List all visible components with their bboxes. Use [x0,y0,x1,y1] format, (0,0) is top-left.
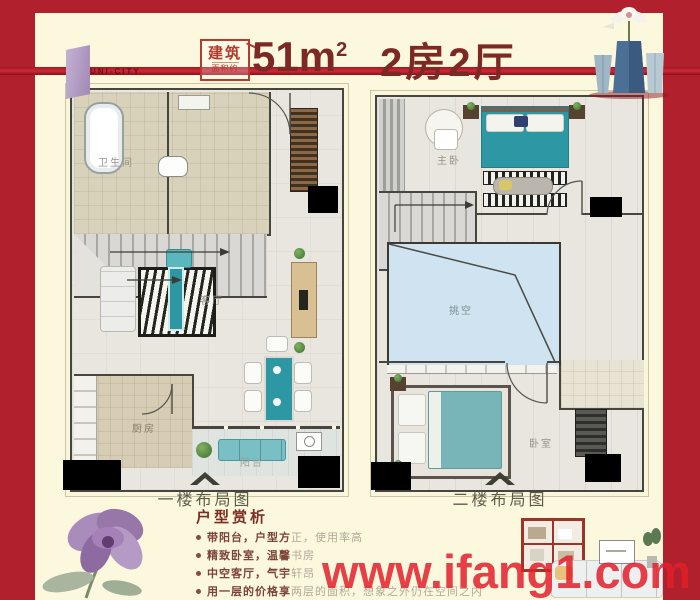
plant-icon [294,248,305,259]
redaction-box [63,460,121,490]
bullet-rest: 书房 [291,550,315,562]
floorplan-first-floor: 卫生间 客厅 厨房 阳台 [70,88,344,492]
brand-text: UNI-CITY [90,67,141,76]
bullet-dot-icon [196,553,201,558]
bullet-strong: 精致卧室，温馨 [207,550,291,562]
room-label-bedroom: 卧室 [529,435,553,450]
room-label-void: 挑空 [449,302,473,317]
caption-second-floor-text: 二楼布局图 [425,486,575,510]
area-superscript: 2 [336,39,347,61]
doors-and-arrows-overlay [377,97,642,490]
roof-icon [485,472,515,485]
bullet-rest: 轩昂 [291,568,315,580]
plant-icon [294,342,305,353]
doors-and-arrows-overlay [72,90,342,490]
bullet-dot-icon [196,571,201,576]
analysis-bullet: 带阳台，户型方正，使用率高 [196,532,518,544]
badge-line2: 面积约 [212,62,239,74]
caption-second-floor: 二楼布局图 [425,472,575,510]
room-label-living: 客厅 [200,292,224,307]
rooms-title: 2房2厅 [380,30,517,88]
bullet-rest: 正，使用率高 [291,532,363,544]
bullet-strong: 带阳台，户型方 [207,532,291,544]
brand-flag-icon [66,45,90,99]
caption-first-floor-text: 一楼布局图 [130,486,280,510]
room-label-master: 主卧 [437,152,461,167]
room-label-kitchen: 厨房 [132,420,156,435]
bullet-strong: 中空客厅，气宇 [207,568,291,580]
room-label-balcony: 阳台 [240,454,264,469]
redaction-box [585,454,621,482]
plant-icon [196,442,212,458]
watermark-text: www.ifang1.com [322,544,691,599]
floorplan-poster: UNI-CITY 建筑 面积约 51m2 2房2厅 卫生间 [0,0,700,600]
redaction-box [590,197,622,217]
redaction-box [298,456,340,488]
badge-line1: 建筑 [208,46,242,62]
bullet-dot-icon [196,535,201,540]
redaction-box [371,462,411,490]
area-badge: 建筑 面积约 [200,39,250,81]
area-number: 51m [252,33,336,80]
bullet-dot-icon [196,589,201,594]
redaction-box [308,186,338,213]
area-value: 51m2 [252,26,347,81]
bullet-strong: 用一层的价格享 [207,586,291,598]
roof-icon [190,472,220,485]
room-label-bathroom: 卫生间 [98,154,134,169]
vases-icon [584,3,674,103]
floorplan-second-floor: 主卧 挑空 卧室 [375,95,644,492]
caption-first-floor: 一楼布局图 [130,472,280,510]
